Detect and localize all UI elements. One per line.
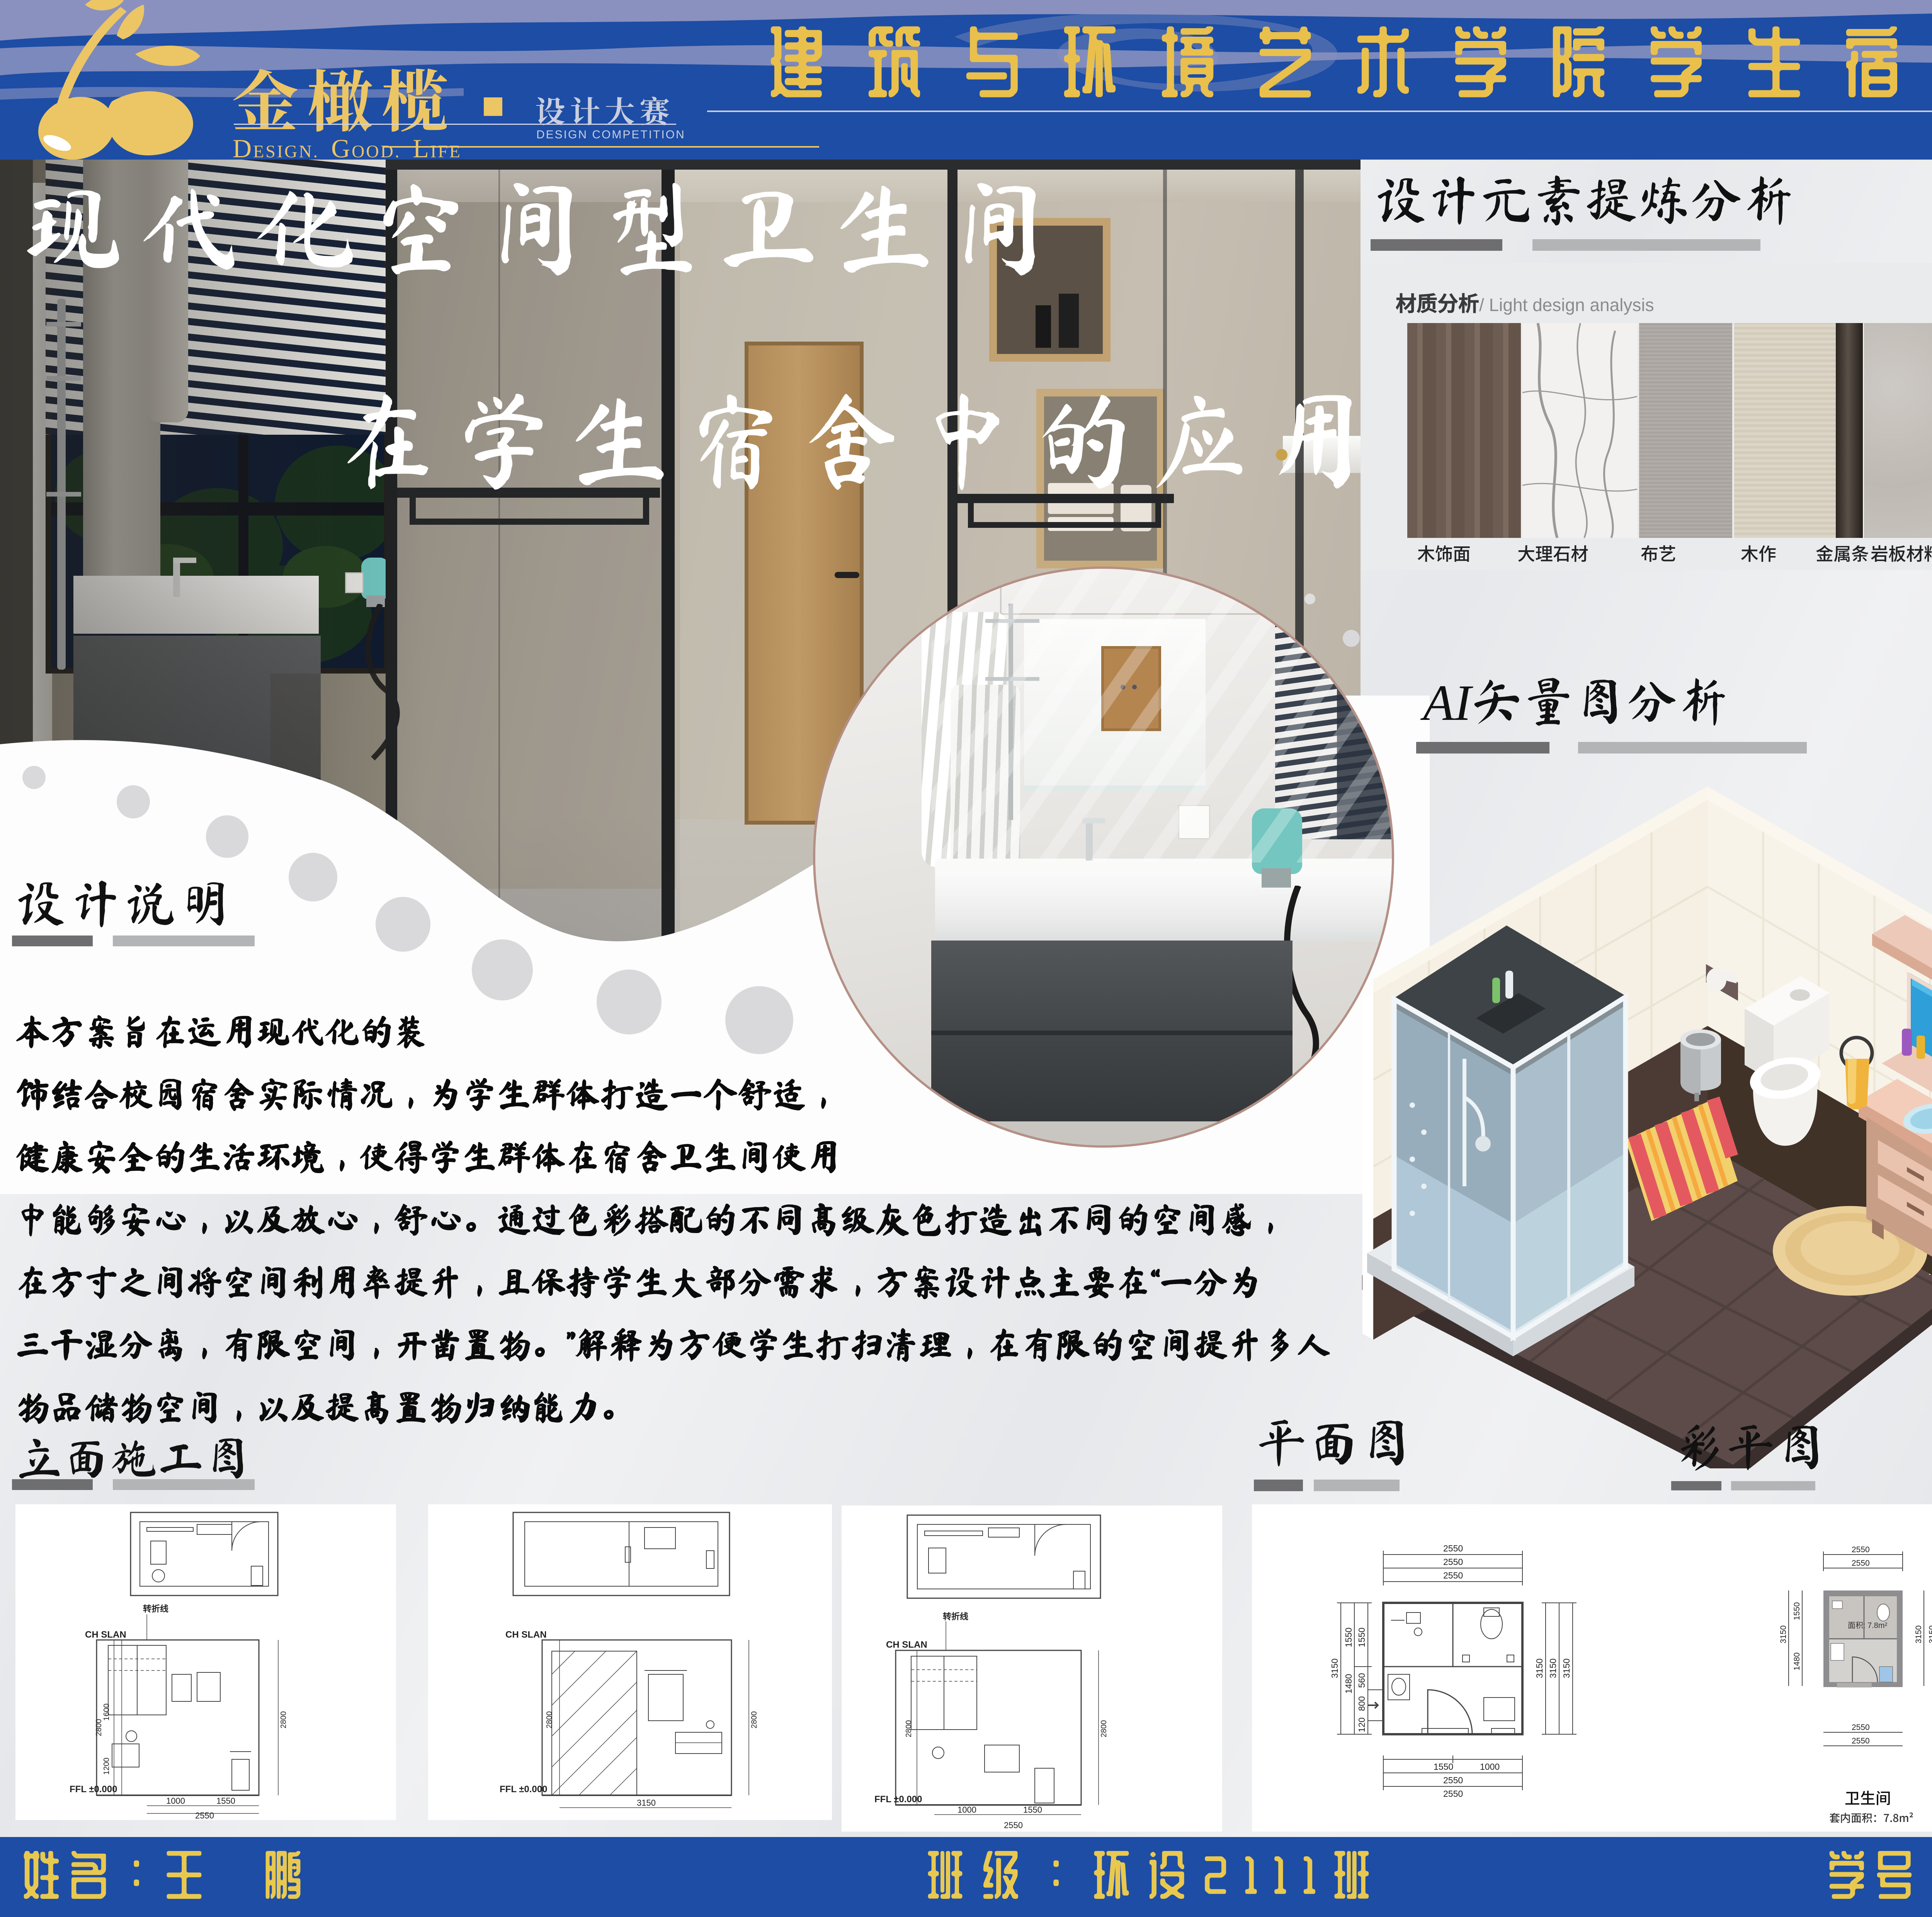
svg-text:3150: 3150	[1928, 1625, 1932, 1643]
svg-text:FFL ±0.000: FFL ±0.000	[874, 1794, 922, 1805]
svg-text:1550: 1550	[216, 1796, 235, 1806]
svg-text:3150: 3150	[1914, 1625, 1923, 1643]
svg-text:2550: 2550	[1004, 1820, 1023, 1830]
svg-text:卫生间: 卫生间	[1845, 1786, 1891, 1808]
svg-text:套内面积：7.8m²: 套内面积：7.8m²	[1829, 1810, 1913, 1825]
svg-text:3150: 3150	[1330, 1658, 1340, 1678]
svg-text:1550: 1550	[1344, 1628, 1354, 1647]
svg-text:3150: 3150	[1548, 1658, 1558, 1678]
svg-text:120: 120	[1357, 1718, 1367, 1732]
svg-text:1200: 1200	[102, 1758, 111, 1775]
svg-text:CH SLAN: CH SLAN	[886, 1640, 927, 1650]
svg-text:2550: 2550	[1852, 1545, 1870, 1554]
svg-text:1550: 1550	[1793, 1602, 1801, 1620]
svg-text:3150: 3150	[1779, 1625, 1788, 1643]
svg-text:2800: 2800	[95, 1719, 103, 1737]
svg-text:2800: 2800	[905, 1720, 913, 1738]
svg-text:1000: 1000	[1480, 1762, 1500, 1772]
svg-text:1000: 1000	[166, 1796, 185, 1806]
svg-text:2550: 2550	[1852, 1559, 1870, 1568]
svg-text:800: 800	[1357, 1696, 1367, 1711]
svg-text:3150: 3150	[1534, 1658, 1544, 1678]
svg-text:转折线: 转折线	[143, 1604, 168, 1614]
svg-text:FFL ±0.000: FFL ±0.000	[70, 1784, 117, 1795]
svg-text:1000: 1000	[957, 1805, 976, 1815]
svg-text:1550: 1550	[1023, 1805, 1042, 1815]
svg-text:CH SLAN: CH SLAN	[85, 1630, 126, 1640]
svg-text:2550: 2550	[1443, 1543, 1463, 1553]
svg-text:1480: 1480	[1793, 1652, 1801, 1670]
svg-text:1600: 1600	[102, 1704, 111, 1721]
svg-text:转折线: 转折线	[943, 1612, 968, 1621]
svg-text:2800: 2800	[1100, 1720, 1108, 1738]
svg-text:2550: 2550	[1443, 1789, 1463, 1799]
svg-text:2550: 2550	[1852, 1723, 1870, 1732]
svg-text:2800: 2800	[545, 1711, 554, 1729]
svg-text:2800: 2800	[279, 1711, 288, 1729]
svg-text:1550: 1550	[1357, 1628, 1367, 1647]
svg-text:FFL ±0.000: FFL ±0.000	[500, 1784, 547, 1795]
svg-text:3150: 3150	[1561, 1658, 1571, 1678]
svg-text:2550: 2550	[1443, 1557, 1463, 1567]
svg-text:560: 560	[1357, 1673, 1367, 1688]
svg-text:2550: 2550	[1443, 1570, 1463, 1580]
svg-text:3150: 3150	[637, 1798, 656, 1808]
svg-text:面积: 7.8m²: 面积: 7.8m²	[1848, 1621, 1888, 1630]
svg-text:1550: 1550	[1434, 1762, 1453, 1772]
svg-text:2550: 2550	[1852, 1737, 1870, 1745]
svg-text:1480: 1480	[1344, 1674, 1354, 1694]
svg-text:2800: 2800	[750, 1711, 759, 1729]
svg-text:CH SLAN: CH SLAN	[505, 1630, 547, 1640]
svg-text:2550: 2550	[195, 1811, 214, 1820]
svg-text:2550: 2550	[1443, 1775, 1463, 1785]
